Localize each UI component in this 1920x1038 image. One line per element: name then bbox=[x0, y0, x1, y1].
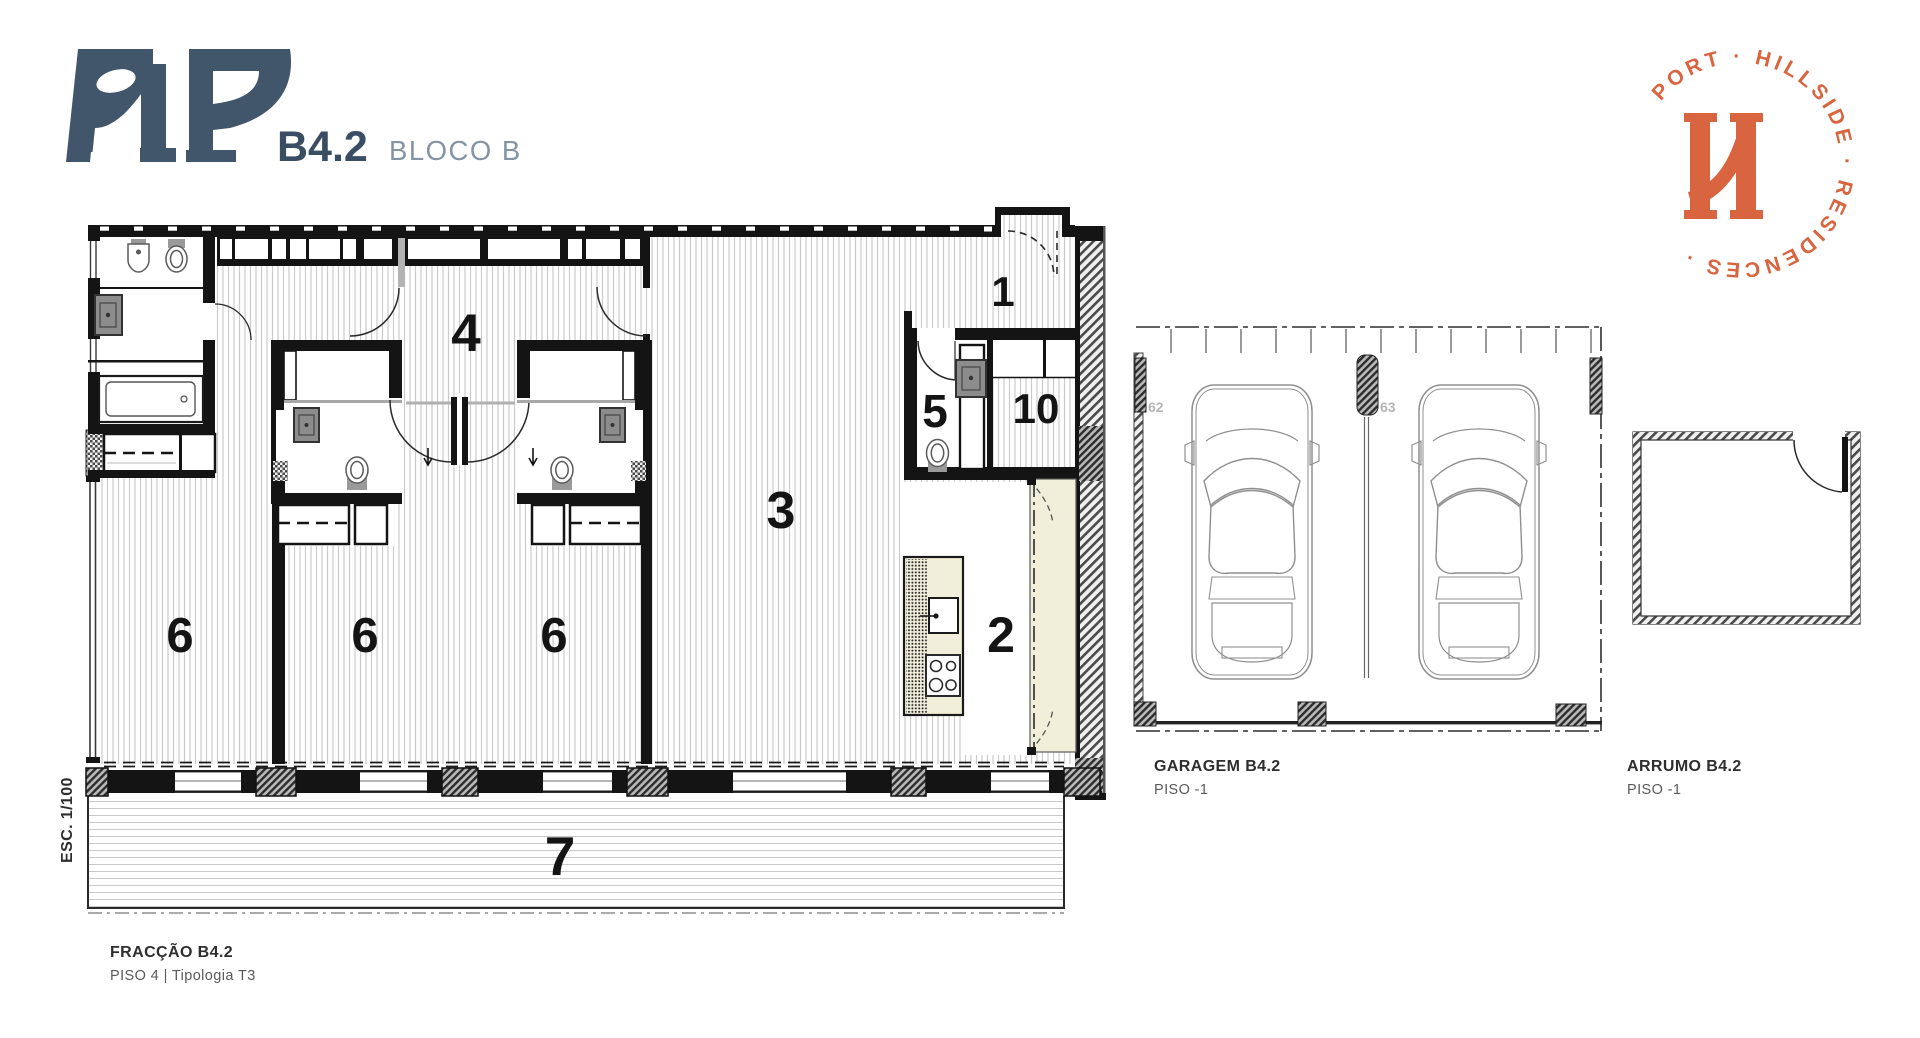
svg-text:PISO -1: PISO -1 bbox=[1627, 782, 1681, 798]
svg-text:6: 6 bbox=[166, 609, 193, 663]
svg-text:5: 5 bbox=[922, 385, 948, 437]
svg-text:3: 3 bbox=[767, 482, 796, 540]
svg-text:4: 4 bbox=[451, 304, 481, 363]
svg-text:PISO 4 | Tipologia T3: PISO 4 | Tipologia T3 bbox=[110, 968, 256, 984]
svg-text:1: 1 bbox=[991, 268, 1014, 315]
svg-text:ARRUMO B4.2: ARRUMO B4.2 bbox=[1627, 758, 1742, 775]
svg-text:6: 6 bbox=[351, 609, 378, 663]
svg-text:PISO -1: PISO -1 bbox=[1154, 782, 1208, 798]
svg-text:GARAGEM B4.2: GARAGEM B4.2 bbox=[1154, 758, 1281, 775]
svg-text:63: 63 bbox=[1380, 399, 1396, 415]
svg-text:6: 6 bbox=[540, 609, 567, 663]
svg-text:FRACÇÃO B4.2: FRACÇÃO B4.2 bbox=[110, 941, 233, 961]
svg-text:62: 62 bbox=[1148, 399, 1164, 415]
svg-text:ESC. 1/100: ESC. 1/100 bbox=[59, 777, 76, 863]
svg-text:10: 10 bbox=[1013, 385, 1060, 432]
svg-text:7: 7 bbox=[545, 825, 576, 887]
svg-text:BLOCO B: BLOCO B bbox=[389, 135, 522, 166]
svg-text:2: 2 bbox=[987, 607, 1015, 663]
svg-text:B4.2: B4.2 bbox=[277, 123, 368, 171]
